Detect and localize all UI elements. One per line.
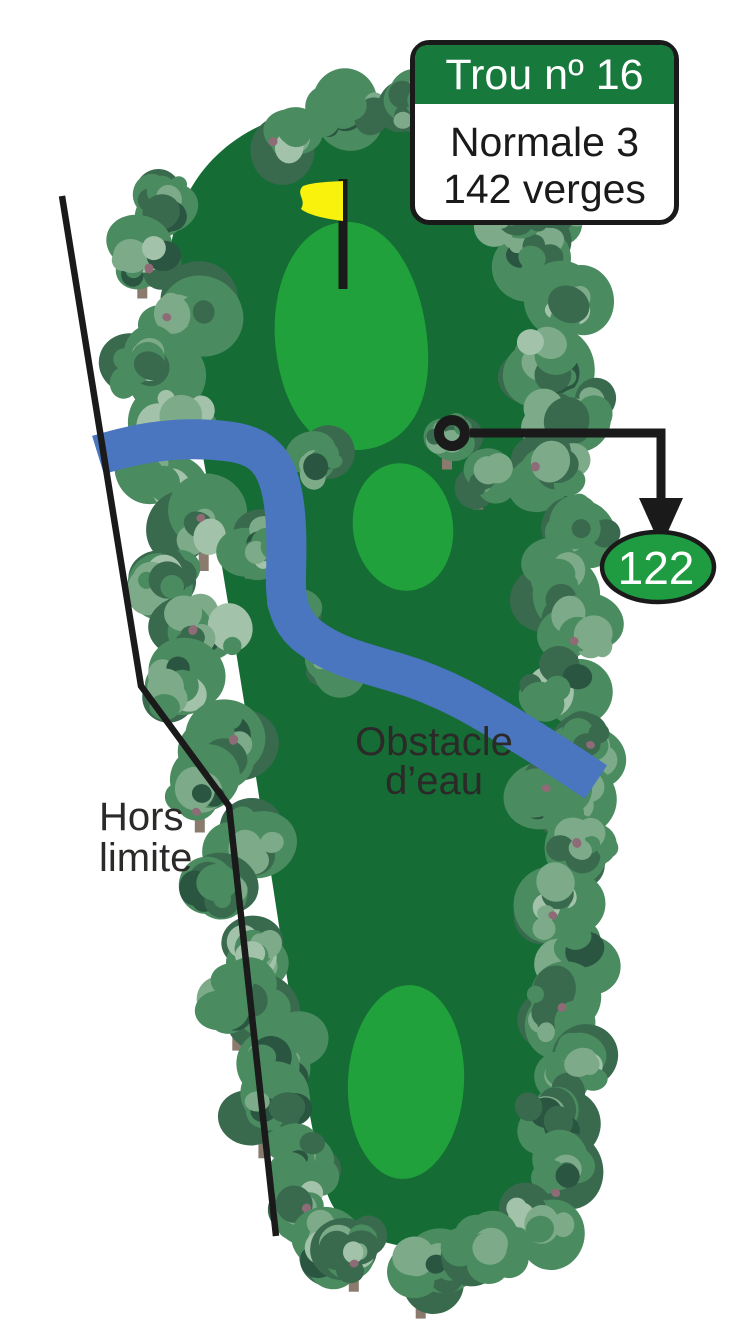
hole-number: Trou nº 16 — [445, 51, 643, 99]
hole-par: Normale 3 — [450, 119, 639, 165]
golf-hole-map: Hors limite Obstacle d’eau 122 Trou nº 1… — [0, 0, 750, 1326]
tree-foliage-blob — [533, 917, 556, 940]
out-of-bounds-label: Hors limite — [99, 795, 192, 880]
water-hazard-label-line1: Obstacle — [355, 720, 513, 764]
tree-foliage-blob — [531, 462, 540, 472]
out-of-bounds-label-line2: limite — [99, 836, 192, 880]
golf-hole-diagram: Hors limite Obstacle d’eau 122 Trou nº 1… — [0, 0, 750, 1326]
water-hazard-label-line2: d’eau — [385, 759, 483, 803]
hole-sign: Trou nº 16 Normale 3 142 verges — [413, 43, 677, 223]
hole-distance: 142 verges — [443, 166, 646, 212]
out-of-bounds-label-line1: Hors — [99, 795, 183, 839]
tree-foliage-blob — [245, 1092, 270, 1112]
distance-value: 122 — [618, 542, 695, 594]
